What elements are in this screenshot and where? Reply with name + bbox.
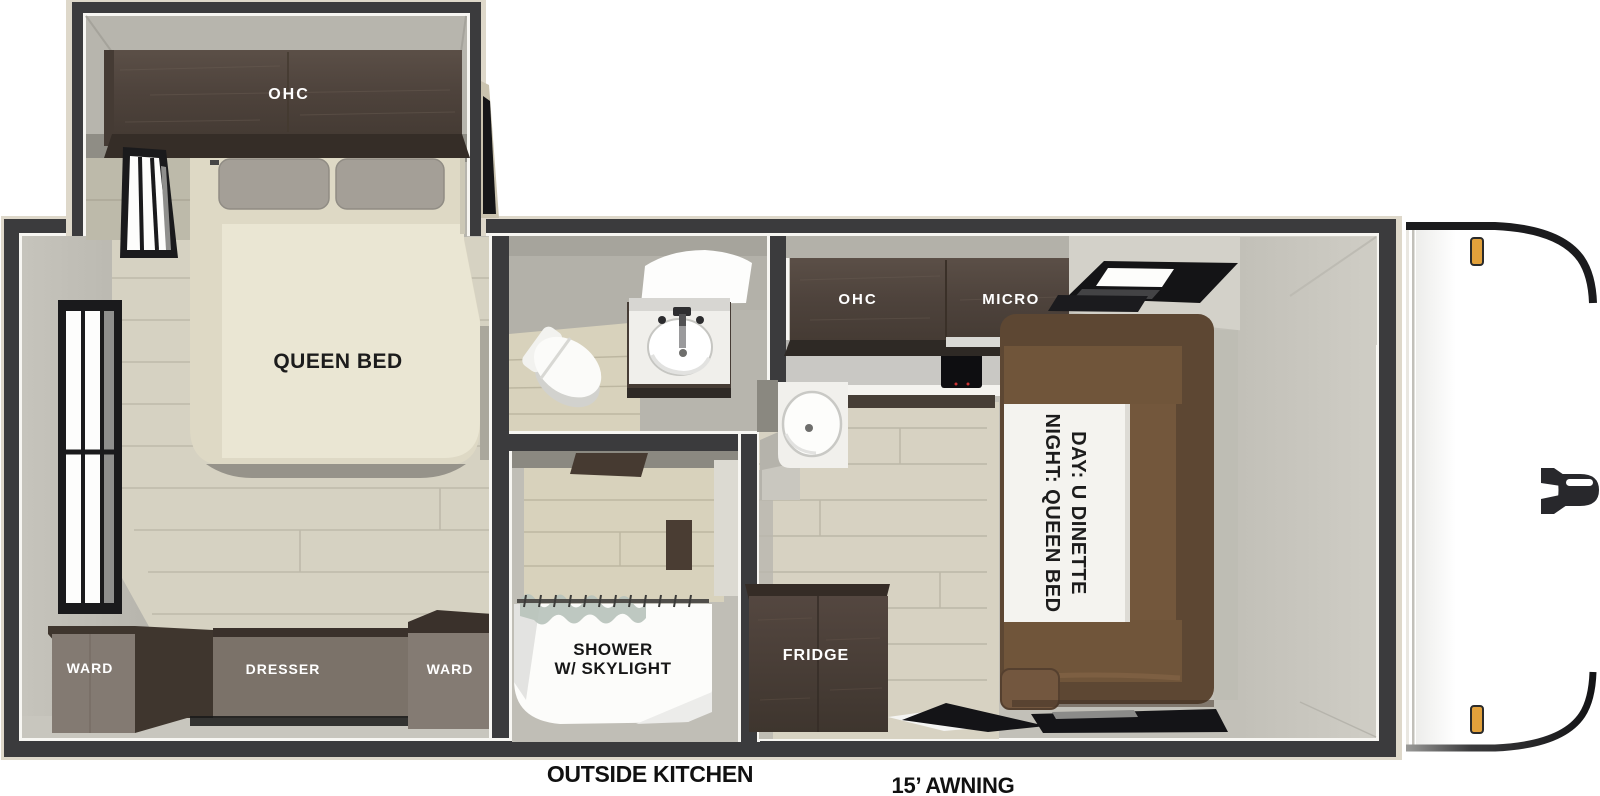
svg-text:DAY: U DINETTE: DAY: U DINETTE xyxy=(1067,431,1089,595)
svg-text:SHOWER: SHOWER xyxy=(573,640,653,659)
svg-text:15’ AWNING: 15’ AWNING xyxy=(891,773,1014,796)
svg-text:QUEEN BED: QUEEN BED xyxy=(273,350,402,373)
svg-text:MICRO: MICRO xyxy=(982,291,1040,308)
svg-text:NIGHT: QUEEN BED: NIGHT: QUEEN BED xyxy=(1041,413,1063,612)
svg-text:DRESSER: DRESSER xyxy=(246,661,321,677)
svg-text:W/ SKYLIGHT: W/ SKYLIGHT xyxy=(555,659,672,678)
svg-text:FRIDGE: FRIDGE xyxy=(783,647,849,664)
svg-text:WARD: WARD xyxy=(67,660,114,676)
svg-text:WARD: WARD xyxy=(427,661,474,677)
svg-text:OUTSIDE KITCHEN: OUTSIDE KITCHEN xyxy=(547,761,753,787)
svg-text:OHC: OHC xyxy=(268,86,310,103)
svg-text:OHC: OHC xyxy=(838,291,877,308)
